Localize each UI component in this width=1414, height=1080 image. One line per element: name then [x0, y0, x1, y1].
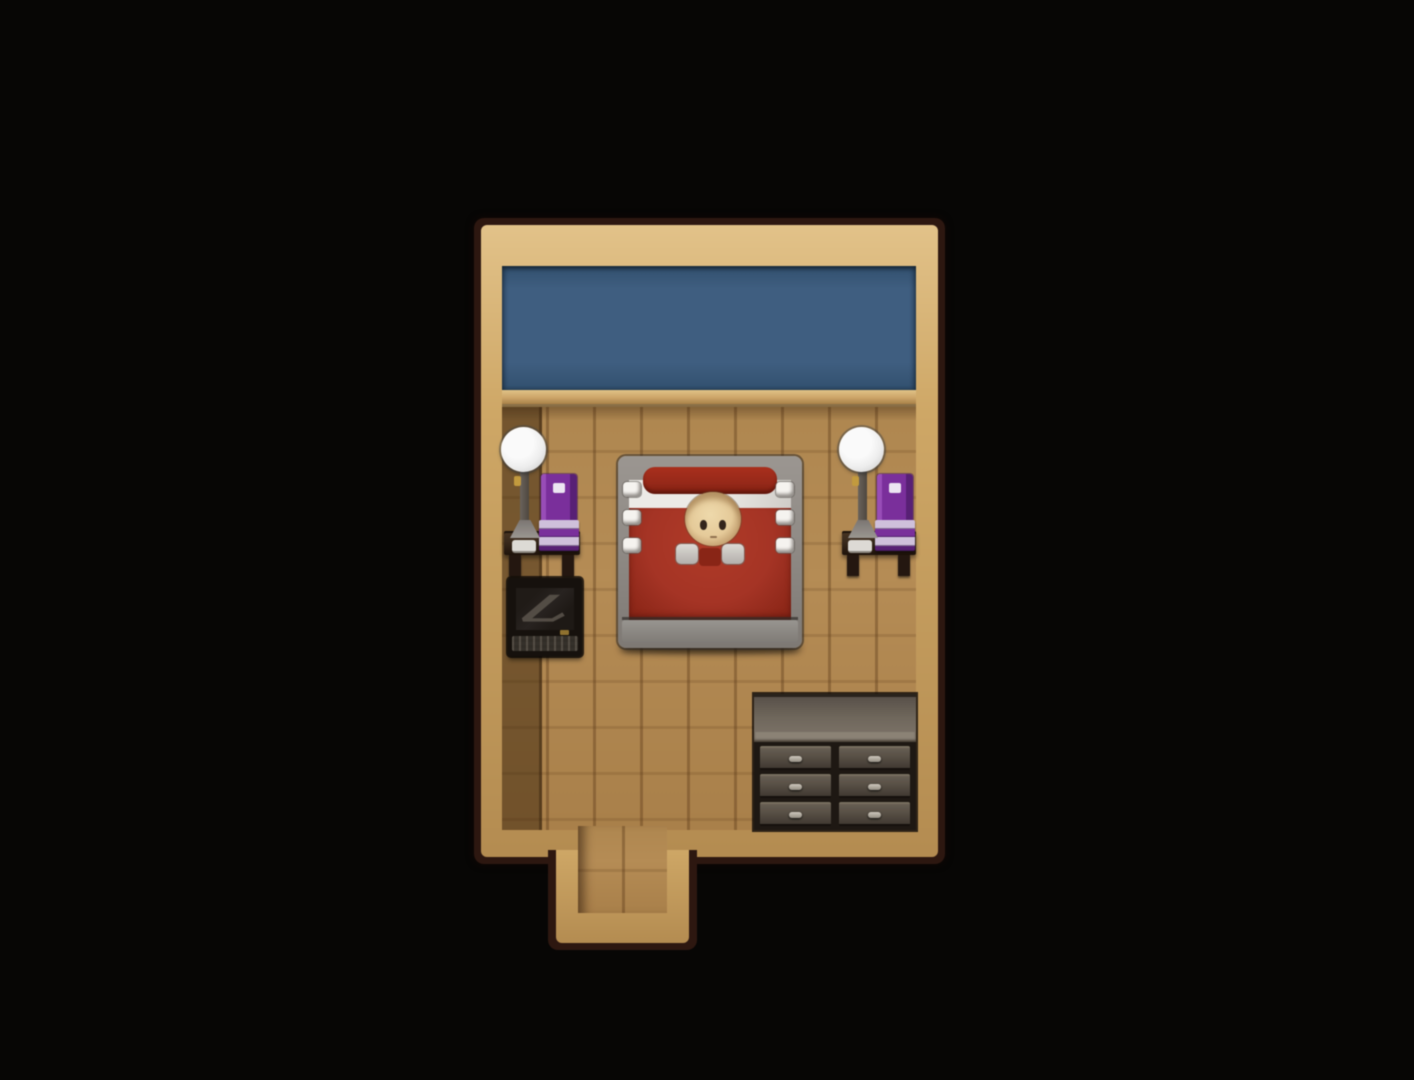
nightstand-leg	[562, 555, 574, 576]
white-cup	[512, 540, 536, 553]
doorway-exit-floor[interactable]	[578, 826, 667, 913]
drawer-handle	[789, 812, 802, 818]
collar-left	[676, 544, 698, 564]
lamp-left[interactable]	[501, 427, 546, 472]
bed-knobs-left	[623, 482, 641, 566]
lamp-gold-ring	[852, 476, 859, 486]
character-mouth	[710, 536, 717, 538]
book-label	[889, 483, 901, 493]
lamp-stem	[858, 466, 867, 524]
sleeping-character[interactable]	[685, 492, 741, 546]
book-spine	[875, 537, 915, 546]
drawer-handle	[868, 812, 881, 818]
bed-bolster-pillow	[643, 467, 777, 494]
nightstand-leg	[847, 555, 859, 576]
bed-knob	[623, 510, 641, 525]
character-eye	[700, 520, 707, 530]
dresser-drawer[interactable]	[760, 746, 831, 770]
left-book-stack	[539, 520, 579, 551]
dresser-drawer[interactable]	[839, 774, 910, 798]
upright-purple-book	[877, 474, 913, 524]
bed-knobs-right	[776, 482, 794, 566]
book-spine	[875, 546, 915, 551]
blue-wall	[502, 266, 916, 390]
dresser-drawer[interactable]	[839, 746, 910, 770]
wall-baseboard	[502, 390, 916, 407]
dresser-drawer[interactable]	[839, 802, 910, 826]
dresser-drawers	[760, 746, 910, 826]
screen-glare	[516, 588, 574, 630]
book-spine	[875, 529, 915, 537]
book-spine	[539, 520, 579, 529]
drawer-handle	[789, 784, 802, 790]
dresser-drawer[interactable]	[760, 774, 831, 798]
drawer-handle	[789, 756, 802, 762]
bed-footboard	[622, 620, 798, 642]
wall-floor-shade	[502, 407, 916, 421]
lamp-stem	[520, 466, 529, 524]
computer-indicator-light	[560, 630, 569, 635]
dresser-top	[754, 694, 916, 734]
nightstand-leg	[509, 555, 521, 576]
dresser[interactable]	[754, 694, 916, 830]
bed-knob	[623, 538, 641, 553]
bed-knob	[776, 510, 794, 525]
book-spine	[539, 537, 579, 546]
computer-screen	[516, 588, 574, 630]
dresser-drawer[interactable]	[760, 802, 831, 826]
right-book-stack	[875, 520, 915, 551]
nightstand-leg	[898, 555, 910, 576]
character-hands	[699, 548, 721, 566]
bed-knob	[623, 482, 641, 497]
lamp-right[interactable]	[839, 427, 884, 472]
book-spine	[539, 546, 579, 551]
bed[interactable]	[618, 456, 802, 648]
computer-desk[interactable]	[508, 578, 582, 656]
lamp-gold-ring	[514, 476, 521, 486]
book-label	[553, 483, 565, 493]
upright-purple-book	[541, 474, 577, 524]
dresser-top-edge	[754, 732, 916, 742]
white-cup	[848, 540, 872, 553]
drawer-handle	[868, 784, 881, 790]
collar-right	[722, 544, 744, 564]
book-spine	[875, 520, 915, 529]
character-eye	[719, 520, 726, 530]
bed-knob	[776, 538, 794, 553]
bed-knob	[776, 482, 794, 497]
computer-keyboard	[512, 636, 578, 651]
game-viewport[interactable]	[0, 0, 1414, 1080]
book-spine	[539, 529, 579, 537]
drawer-handle	[868, 756, 881, 762]
